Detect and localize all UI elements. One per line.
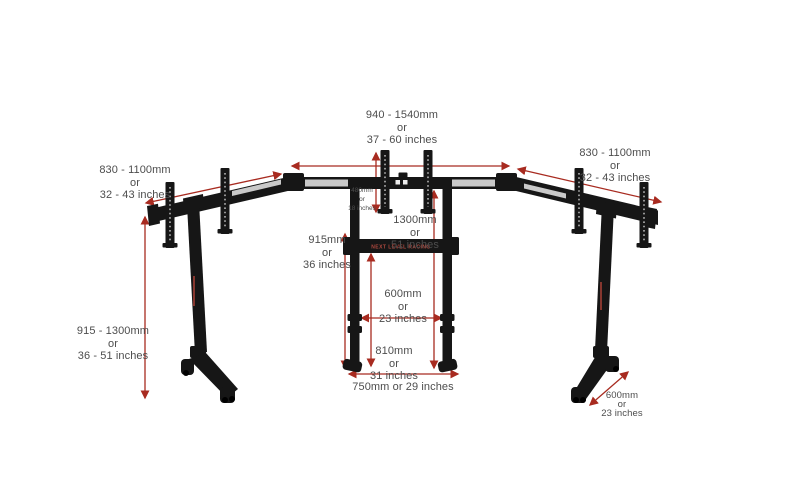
- elbow-joint-right: [496, 173, 517, 191]
- dim-conjunction: or: [332, 122, 472, 135]
- dim-conjunction: or: [545, 160, 685, 173]
- dim-label-mid-height: 915mm or 36 inches: [267, 234, 387, 272]
- dim-label-monitor-span: 940 - 1540mm or 37 - 60 inches: [332, 109, 472, 147]
- elbow-joint-left: [283, 173, 304, 191]
- dim-label-lower-height: 810mm or 31 inches: [334, 345, 454, 383]
- dim-conjunction: or: [343, 301, 463, 314]
- dim-value-mm: 830 - 1100mm: [65, 164, 205, 177]
- dim-value-mm: 830 - 1100mm: [545, 147, 685, 160]
- dim-value-inches: 18 inches: [328, 204, 396, 213]
- dim-label-stand-height: 915 - 1300mm or 36 - 51 inches: [43, 325, 183, 363]
- dim-conjunction: or: [267, 247, 387, 260]
- dim-value-inches: 23 inches: [343, 313, 463, 326]
- dim-label-left-arm: 830 - 1100mm or 32 - 43 inches: [65, 164, 205, 202]
- dim-value-mm: 1300mm: [355, 214, 475, 227]
- dim-conjunction: or: [65, 177, 205, 190]
- dim-value-inches: 36 - 51 inches: [43, 350, 183, 363]
- dim-label-foot-depth: 600mm or 23 inches: [574, 392, 670, 418]
- dim-value-inches: 32 - 43 inches: [545, 172, 685, 185]
- dim-label-right-arm: 830 - 1100mm or 32 - 43 inches: [545, 147, 685, 185]
- dim-value-inches: 36 inches: [267, 259, 387, 272]
- dim-value-mm: 940 - 1540mm: [332, 109, 472, 122]
- dim-value-inches: 32 - 43 inches: [65, 189, 205, 202]
- dim-value-mm: 600mm: [343, 288, 463, 301]
- dim-label-inner-width: 600mm or 23 inches: [343, 288, 463, 326]
- dim-conjunction: or: [43, 338, 183, 351]
- dim-conjunction: or: [334, 358, 454, 371]
- dim-value-mm: 480mm: [328, 186, 396, 195]
- triple-monitor-stand-diagram: NEXT LEVEL RACING 940 - 1540mm or 37 - 6…: [0, 0, 800, 500]
- dim-label-feet-width: 750mm or 29 inches: [333, 381, 473, 394]
- dim-label-bracket-height: 480mm or 18 inches: [328, 186, 396, 213]
- dim-conjunction: or: [328, 195, 396, 204]
- dim-value-combined: 750mm or 29 inches: [333, 381, 473, 394]
- dim-value-inches: 37 - 60 inches: [332, 134, 472, 147]
- dim-value-mm: 810mm: [334, 345, 454, 358]
- dim-value-inches: 23 inches: [574, 410, 670, 419]
- dim-value-mm: 915 - 1300mm: [43, 325, 183, 338]
- dim-value-mm: 915mm: [267, 234, 387, 247]
